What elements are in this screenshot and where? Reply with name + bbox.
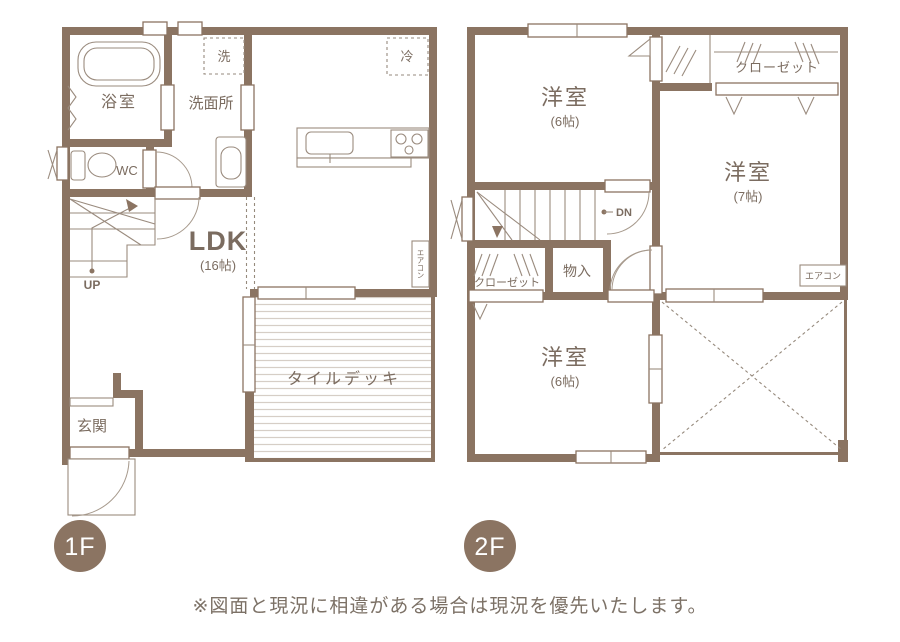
balcony-window-side [649,335,662,403]
aircon-label-1f: エアコン [416,249,425,279]
entrance-step [70,398,113,406]
wc-door [143,150,192,188]
label-wc: WC [116,163,138,178]
wc-window [48,147,68,180]
balcony-cross [662,302,842,450]
entrance-door [68,447,135,516]
label-closet-top: クローゼット [735,60,819,75]
label-fridge: 冷 [400,49,413,64]
floor-1f: エアコン UP 浴室 洗面所 WC LDK (16帖) 玄関 タイルデッキ [48,22,437,516]
label-washroom: 洗面所 [188,95,233,112]
floor-plan-drawing: エアコン UP 浴室 洗面所 WC LDK (16帖) 玄関 タイルデッキ [0,0,900,637]
bath-door [161,85,174,130]
closet-small-hatch [666,46,696,76]
bedroom-bottom-door [608,250,654,302]
up-label: UP [84,278,101,292]
label-tile-deck: タイルデッキ [287,369,401,388]
toilet [71,151,116,180]
dn-label: DN [616,207,632,219]
vanity [216,137,246,187]
floor-badge-2f: 2F [464,520,516,572]
closet-mid-folding-door [469,290,543,319]
badge-2f-label: 2F [474,533,505,561]
stair-window-2f [451,197,473,241]
aircon-box-2f: エアコン [800,265,846,286]
window-2f-top [528,24,627,37]
window-2f-bottom [576,451,646,463]
floor-badge-1f: 1F [54,520,106,572]
deck-side-window [243,297,255,392]
label-bathroom: 浴室 [101,93,137,111]
label-bedroom-top-size: (6帖) [551,114,580,129]
stairs-1f: UP [70,197,155,292]
floor-plan-page: エアコン UP 浴室 洗面所 WC LDK (16帖) 玄関 タイルデッキ [0,0,900,637]
ldk-deck-window [258,287,355,299]
label-ldk-size: (16帖) [200,258,236,273]
badge-1f-label: 1F [64,533,95,561]
label-bedroom-top: 洋室 [541,85,589,110]
closet-top-folding-door [716,83,838,114]
labels-2f: 洋室 (6帖) 洋室 (7帖) 洋室 (6帖) クローゼット クローゼット 物入 [474,60,819,389]
label-ldk: LDK [189,226,248,256]
label-bedroom-right-size: (7帖) [734,189,763,204]
closet-small-door [629,37,662,81]
label-washer: 洗 [217,49,230,64]
aircon-label-2f: エアコン [805,271,841,281]
floor-2f: DN エアコン 洋室 (6帖) 洋室 (7帖) 洋室 (6帖) クローゼット ク… [451,24,848,463]
label-entrance: 玄関 [77,418,107,435]
label-bedroom-bottom: 洋室 [541,345,589,370]
aircon-box-1f: エアコン [412,241,429,287]
disclaimer-note: ※図面と現況に相違がある場合は現況を優先いたします。 [192,595,707,617]
stairs-2f: DN [477,190,632,240]
washroom-opening [241,85,254,130]
label-bedroom-bottom-size: (6帖) [551,374,580,389]
label-bedroom-right: 洋室 [724,160,772,185]
window-top-2 [178,22,202,35]
window-top-1 [143,22,167,35]
label-closet-mid: クローゼット [474,276,540,289]
closet-mid-hatch [474,254,538,276]
label-storage: 物入 [563,263,591,279]
balcony-window-wide [666,289,763,302]
kitchen-counter [297,128,429,167]
bathtub [78,42,160,86]
